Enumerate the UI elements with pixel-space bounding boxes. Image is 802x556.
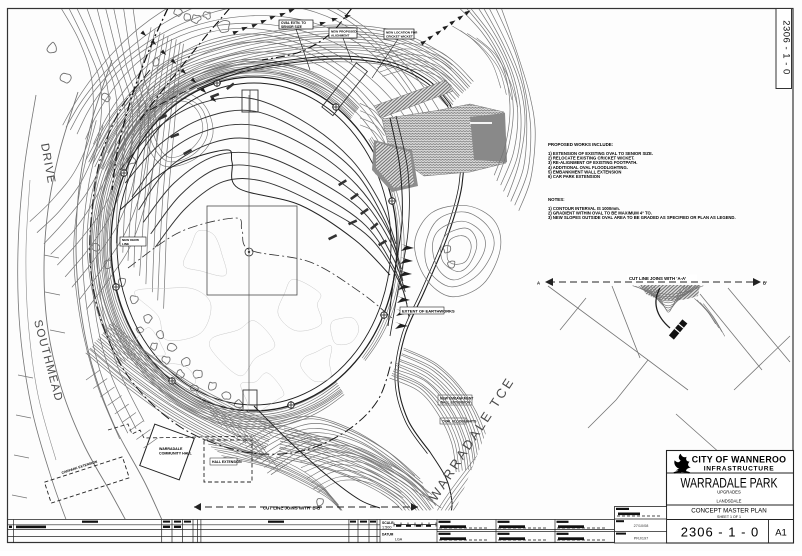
svg-text:WARRADALE PARK: WARRADALE PARK <box>680 475 777 491</box>
svg-text:B’: B’ <box>763 281 767 286</box>
svg-text:WARRADALE: WARRADALE <box>159 447 183 451</box>
svg-text:SENIOR SIZE: SENIOR SIZE <box>281 25 303 29</box>
svg-text:HALL EXTENSION: HALL EXTENSION <box>212 460 242 464</box>
svg-text:CITY OF WANNEROO: CITY OF WANNEROO <box>692 455 787 465</box>
svg-text:PROPOSED WORKS INCLUDE:: PROPOSED WORKS INCLUDE: <box>548 142 614 147</box>
svg-text:CRICKET WICKET: CRICKET WICKET <box>386 35 413 39</box>
svg-text:6) CAR PARK EXTENSION: 6) CAR PARK EXTENSION <box>548 174 600 179</box>
svg-text:CONCEPT MASTER PLAN: CONCEPT MASTER PLAN <box>691 508 767 515</box>
svg-text:PRJ/197: PRJ/197 <box>634 537 649 541</box>
svg-text:LGA: LGA <box>395 538 403 542</box>
svg-text:27/10/08: 27/10/08 <box>634 524 649 528</box>
svg-text:ALIGNMENT: ALIGNMENT <box>331 34 349 38</box>
svg-text:DATUM: DATUM <box>382 533 394 537</box>
svg-text:COMMUNITY HALL: COMMUNITY HALL <box>159 452 192 456</box>
svg-text:LINE: LINE <box>122 242 129 246</box>
svg-text:LANDSDALE: LANDSDALE <box>717 499 742 504</box>
svg-text:SCALE: SCALE <box>382 521 394 525</box>
svg-text:CUT LINE JOINS WITH ‘B-B’: CUT LINE JOINS WITH ‘B-B’ <box>263 506 322 511</box>
svg-text:SHEET 1 OF 1: SHEET 1 OF 1 <box>717 515 741 519</box>
svg-text:A: A <box>537 281 540 286</box>
svg-text:UPGRADES: UPGRADES <box>717 490 741 495</box>
svg-text:2306 - 1 - 0: 2306 - 1 - 0 <box>681 525 760 540</box>
svg-text:INFRASTRUCTURE: INFRASTRUCTURE <box>704 466 775 473</box>
svg-text:2306 - 1 - 0: 2306 - 1 - 0 <box>781 20 792 75</box>
svg-text:CUT LINE JOINS WITH ‘A-A’: CUT LINE JOINS WITH ‘A-A’ <box>629 276 686 281</box>
svg-text:1:500: 1:500 <box>382 526 392 530</box>
svg-text:NOTES:: NOTES: <box>548 197 565 202</box>
svg-text:EXTENT OF EARTHWORKS: EXTENT OF EARTHWORKS <box>402 308 455 313</box>
svg-text:3) NEW SLOPES OUTSIDE OVAL ARE: 3) NEW SLOPES OUTSIDE OVAL AREA TO BE GR… <box>548 215 736 220</box>
svg-text:A1: A1 <box>775 528 787 539</box>
